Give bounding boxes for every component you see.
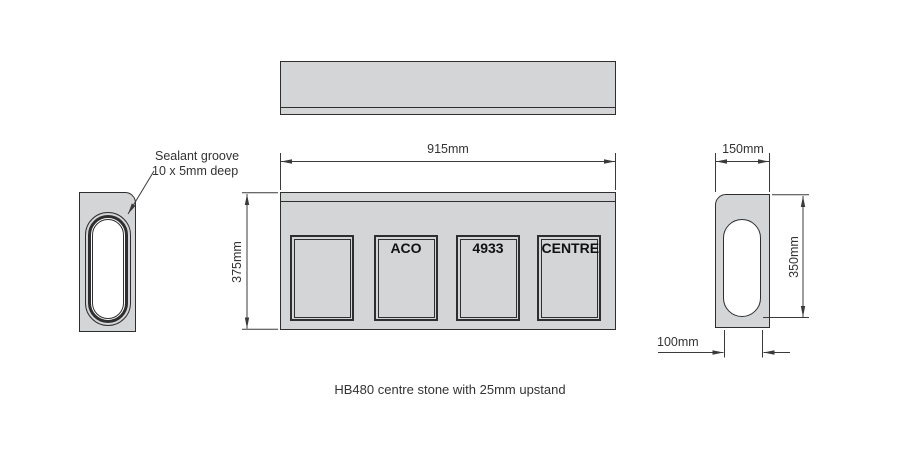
dim-overall-height: 375mm bbox=[230, 232, 244, 292]
panel-inner-border: 4933 bbox=[460, 239, 517, 318]
recessed-panel-4933: 4933 bbox=[456, 235, 520, 321]
callout-line2: 10 x 5mm deep bbox=[152, 164, 239, 179]
sealant-groove-outer bbox=[85, 212, 131, 326]
drawing-caption: HB480 centre stone with 25mm upstand bbox=[280, 382, 620, 397]
right-end-view bbox=[715, 194, 770, 328]
recessed-panel-aco: ACO bbox=[374, 235, 438, 321]
panel-inner-border bbox=[294, 239, 351, 318]
upstand-edge-line bbox=[280, 201, 616, 202]
dim-end-width: 150mm bbox=[713, 142, 773, 156]
channel-cutout bbox=[723, 219, 761, 317]
panel-inner-border: ACO bbox=[378, 239, 435, 318]
sealant-groove-inner bbox=[92, 219, 124, 319]
sealant-groove-ring bbox=[88, 215, 128, 323]
callout-line1: Sealant groove bbox=[152, 149, 239, 164]
dim-overall-width: 915mm bbox=[280, 142, 616, 156]
panel-inner-border: CENTRE bbox=[541, 239, 598, 318]
panel-label: 4933 bbox=[461, 241, 516, 256]
recessed-panel-blank bbox=[290, 235, 354, 321]
dim-end-height: 350mm bbox=[787, 227, 801, 287]
dim-channel-width: 100mm bbox=[657, 335, 699, 349]
panel-label: ACO bbox=[379, 241, 434, 256]
technical-drawing: ACO 4933 CENTRE bbox=[0, 0, 900, 475]
sealant-groove-callout: Sealant groove 10 x 5mm deep bbox=[152, 149, 239, 178]
front-elevation-view: ACO 4933 CENTRE bbox=[280, 192, 616, 330]
plan-upstand-edge-line bbox=[280, 107, 616, 108]
plan-view bbox=[280, 61, 616, 115]
left-end-view bbox=[79, 192, 136, 332]
panel-label: CENTRE bbox=[542, 241, 597, 256]
recessed-panel-centre: CENTRE bbox=[537, 235, 601, 321]
